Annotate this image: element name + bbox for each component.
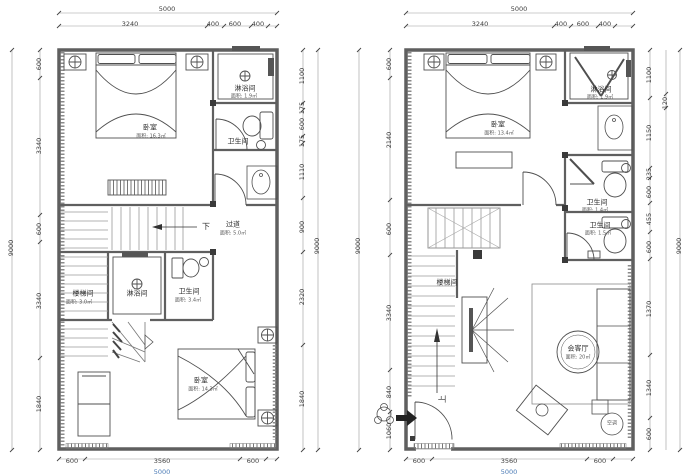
left-dim-right-outer: 9000 (314, 238, 321, 255)
right-dim-right-seg: 1370 (646, 301, 653, 318)
room-label-toilet: 卫生间 (587, 200, 608, 207)
right-dim-top-seg: 600 (577, 21, 589, 28)
right-dim-right-seg: 235 (646, 168, 653, 180)
bed-icon (446, 53, 530, 168)
left-dim-right-seg: 1840 (299, 391, 306, 408)
left-dim-right-seg: 175 (299, 135, 306, 147)
room-area: 面积: 5.0㎡ (220, 232, 246, 237)
room-label-stair: 楼梯间 (437, 280, 458, 287)
up-label: 上 (439, 395, 447, 403)
table-icon (462, 288, 514, 372)
right-dim-left-outer: 9000 (355, 238, 362, 255)
sink-icon (247, 166, 277, 199)
room-label-stair: 楼梯间 (73, 291, 94, 298)
left-dim-left-seg: 600 (36, 223, 43, 235)
bed-icon (96, 53, 176, 138)
right-dim-left-seg: 600 (386, 223, 393, 235)
right-dim-top-total: 5000 (511, 6, 528, 13)
ceiling-fan-icon (424, 54, 556, 70)
right-dim-right-seg: 600 (646, 186, 653, 198)
left-plan-drawing (10, 11, 320, 461)
room-area: 面积: 16.3㎡ (136, 135, 165, 140)
right-dim-left-seg: 3340 (386, 305, 393, 322)
left-dim-bottom-seg: 600 (247, 458, 259, 465)
room-area: 面积: 20㎡ (566, 356, 591, 361)
room-area: 面积: 1.9㎡ (587, 96, 613, 101)
left-dim-bottom-seg: 600 (66, 458, 78, 465)
up-arrow-icon (434, 328, 440, 393)
room-area: 面积: 14.3㎡ (188, 388, 217, 393)
left-dim-left-seg: 3340 (36, 293, 43, 310)
door-arc-icon (215, 174, 246, 205)
entrance-door-icon (410, 402, 452, 441)
right-dim-right-seg: 1340 (646, 380, 653, 397)
room-label-corridor: 过道 (226, 222, 240, 229)
right-dim-bottom-seg: 3560 (501, 458, 518, 465)
left-dim-right-seg: 1100 (299, 68, 306, 85)
right-dim-top-seg: 400 (555, 21, 567, 28)
left-dim-left-seg: 1840 (36, 396, 43, 413)
room-label-living: 会客厅 (568, 346, 589, 353)
door-arc-icon (523, 172, 556, 205)
room-label-toilet: 卫生间 (228, 139, 249, 146)
ceiling-fan-icon (64, 54, 208, 70)
left-dim-right-seg: 900 (299, 221, 306, 233)
wardrobe-icon (78, 372, 110, 436)
right-dim-right-seg: 455 (646, 213, 653, 225)
left-dim-left-seg: 3340 (36, 138, 43, 155)
left-dim-left-outer: 9000 (8, 240, 15, 257)
left-dim-top-seg: 600 (229, 21, 241, 28)
left-dim-top-total: 5000 (159, 6, 176, 13)
left-dim-top-seg: 400 (252, 21, 264, 28)
right-dim-right-outer: 9000 (676, 238, 683, 255)
room-label-shower: 淋浴间 (235, 86, 256, 93)
room-label-shower: 淋浴间 (591, 87, 612, 94)
room-area: 面积: 3.4㎡ (175, 299, 201, 304)
radiator-icon (108, 180, 166, 195)
left-dim-right-seg: 600 (299, 118, 306, 130)
room-area: 面积: 13.4㎡ (484, 132, 513, 137)
left-plan-dim-lines (10, 11, 320, 461)
room-area: 面积: 1.5㎡ (585, 232, 611, 237)
floorplan-canvas: { "left": { "dims": { "top_total": "5000… (0, 0, 694, 473)
right-dim-right-seg: 1150 (646, 125, 653, 142)
room-area: 面积: 1.4㎡ (582, 209, 608, 214)
room-label-shower: 淋浴间 (127, 291, 148, 298)
left-dim-top-seg: 3240 (122, 21, 139, 28)
floorplan-linework (0, 0, 694, 473)
down-label: 下 (202, 223, 210, 231)
right-plan-drawing (357, 11, 682, 461)
sink-icon (598, 106, 632, 150)
right-dim-right-seg: 600 (646, 241, 653, 253)
left-dim-bottom-seg: 3560 (154, 458, 171, 465)
room-area: 面积: 3.0㎡ (66, 301, 92, 306)
left-dim-right-seg: 175 (299, 102, 306, 114)
room-label-bedroom: 卧室 (491, 122, 505, 129)
right-dim-left-seg: 2140 (386, 132, 393, 149)
room-label-bedroom: 卧室 (143, 125, 157, 132)
right-dim-right-seg: 600 (646, 428, 653, 440)
room-label-bedroom: 卧室 (194, 378, 208, 385)
right-dim-bottom-total: 5000 (501, 469, 518, 476)
right-dim-left-seg: 600 (386, 58, 393, 70)
right-dim-right-upper-outer: 120 (662, 97, 669, 109)
room-area: 面积: 1.9㎡ (231, 95, 257, 100)
right-dim-bottom-seg: 600 (594, 458, 606, 465)
toilet-icon (172, 258, 209, 279)
left-dim-left-seg: 600 (36, 58, 43, 70)
right-dim-top-seg: 3240 (472, 21, 489, 28)
left-dim-bottom-total: 5000 (154, 469, 171, 476)
left-dim-right-seg: 1110 (299, 164, 306, 181)
right-dim-top-seg: 400 (599, 21, 611, 28)
right-dim-left-seg: 840 (386, 386, 393, 398)
down-arrow-icon (152, 224, 197, 230)
toilet-icon (570, 159, 631, 197)
right-dim-left-seg: 1060 (386, 423, 393, 440)
room-label-toilet: 卫生间 (590, 223, 611, 230)
bed-icon (178, 349, 255, 419)
shower-icon (113, 252, 161, 314)
ac-label: 空调 (607, 422, 617, 427)
left-dim-top-seg: 400 (207, 21, 219, 28)
room-label-toilet: 卫生间 (179, 289, 200, 296)
right-dim-bottom-seg: 600 (413, 458, 425, 465)
left-dim-right-seg: 2320 (299, 289, 306, 306)
plant-icon (375, 404, 394, 424)
right-dim-right-seg: 1100 (646, 67, 653, 84)
